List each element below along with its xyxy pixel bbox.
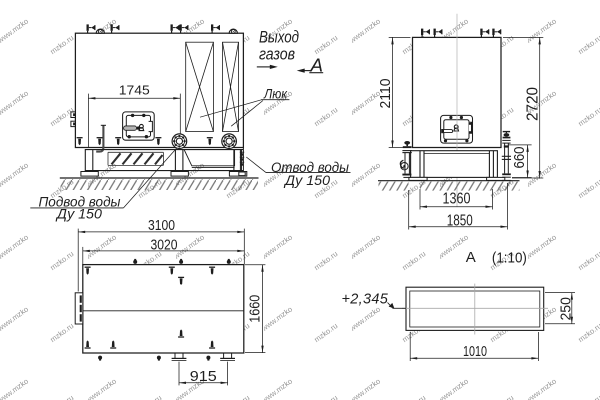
svg-text:А: А [466, 249, 476, 266]
svg-text:+2,345: +2,345 [342, 291, 389, 307]
svg-text:Ду 150: Ду 150 [55, 206, 102, 221]
svg-text:2720: 2720 [524, 87, 541, 121]
svg-text:1850: 1850 [447, 213, 473, 230]
svg-text:1360: 1360 [443, 191, 471, 208]
svg-text:Выход: Выход [259, 28, 299, 46]
svg-text:газов: газов [259, 46, 295, 64]
svg-text:1745: 1745 [119, 84, 150, 98]
svg-text:660: 660 [512, 147, 528, 169]
svg-text:3100: 3100 [148, 218, 175, 234]
svg-text:Ду 150: Ду 150 [283, 173, 330, 189]
svg-text:(1:10): (1:10) [492, 249, 527, 266]
svg-text:1010: 1010 [463, 343, 487, 360]
svg-text:1660: 1660 [247, 295, 263, 323]
svg-text:Люк: Люк [263, 85, 288, 101]
svg-text:250: 250 [558, 297, 575, 321]
svg-text:915: 915 [190, 369, 217, 385]
svg-text:2110: 2110 [378, 79, 394, 109]
svg-text:3020: 3020 [151, 238, 178, 254]
